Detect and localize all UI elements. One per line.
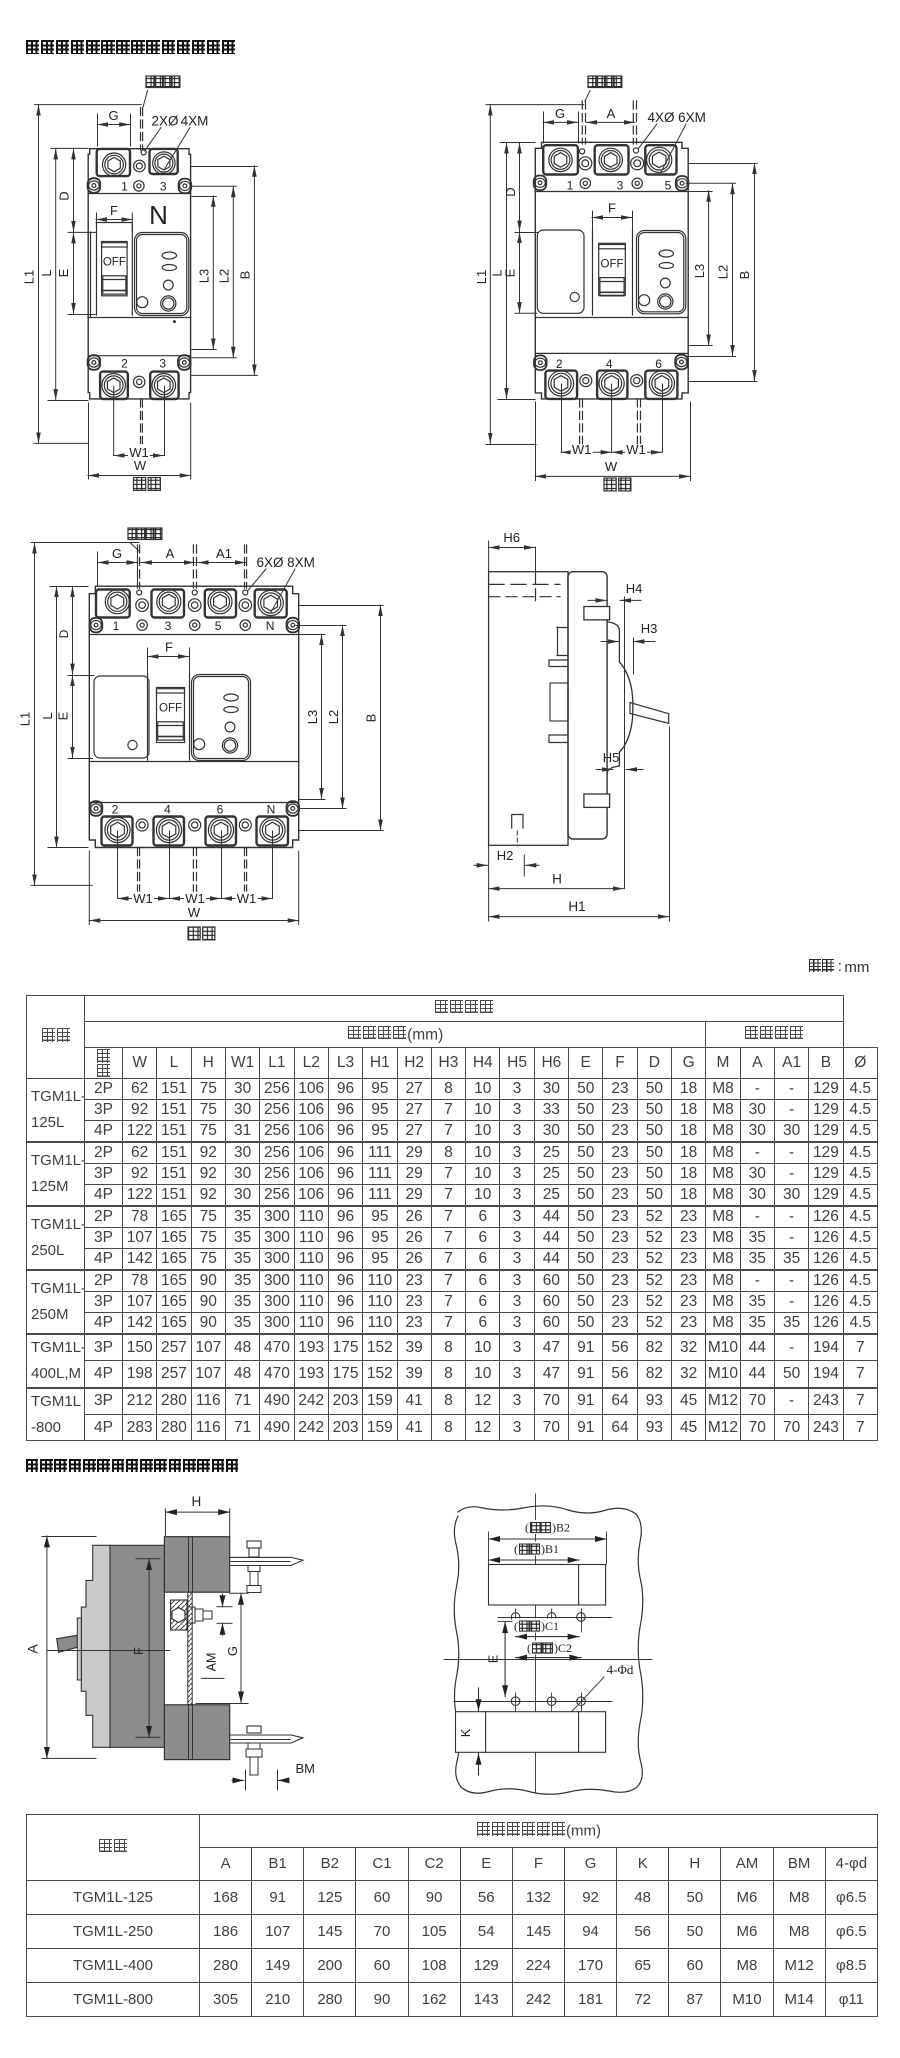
svg-text:H1: H1 xyxy=(568,899,585,914)
svg-text:H6: H6 xyxy=(503,530,520,545)
svg-text:BM: BM xyxy=(295,1761,315,1776)
svg-text:1: 1 xyxy=(121,180,128,194)
svg-text:H5: H5 xyxy=(603,750,620,765)
svg-text:F: F xyxy=(608,201,616,216)
svg-text:(: ( xyxy=(514,1619,518,1633)
svg-text:3: 3 xyxy=(159,357,166,371)
svg-text:OFF: OFF xyxy=(103,257,126,269)
svg-text:5: 5 xyxy=(215,619,222,633)
svg-text:G: G xyxy=(225,1646,240,1656)
svg-text:4XM: 4XM xyxy=(181,114,209,129)
svg-text:L: L xyxy=(40,712,55,719)
svg-text:L3: L3 xyxy=(197,269,212,283)
svg-text:3: 3 xyxy=(617,179,624,193)
svg-text:W: W xyxy=(188,905,201,920)
svg-text:1: 1 xyxy=(113,619,120,633)
svg-text:L2: L2 xyxy=(715,265,730,279)
svg-text:H: H xyxy=(552,872,562,887)
svg-text:3: 3 xyxy=(160,180,167,194)
svg-text:E: E xyxy=(487,1655,501,1663)
svg-text:1: 1 xyxy=(567,179,574,193)
svg-text:D: D xyxy=(56,191,71,200)
svg-text:W: W xyxy=(605,459,618,474)
svg-text:L1: L1 xyxy=(474,270,489,284)
svg-text:E: E xyxy=(56,268,71,277)
svg-text:8XM: 8XM xyxy=(287,555,315,570)
svg-text:W1: W1 xyxy=(626,442,646,457)
svg-text:L1: L1 xyxy=(18,712,33,726)
svg-text:4: 4 xyxy=(164,803,171,817)
svg-text:2: 2 xyxy=(121,357,128,371)
svg-text:6: 6 xyxy=(217,803,224,817)
svg-text:K: K xyxy=(459,1728,473,1737)
svg-text:A: A xyxy=(607,106,616,121)
svg-text:4XØ: 4XØ xyxy=(647,110,675,125)
svg-text:(: ( xyxy=(527,1641,531,1655)
svg-text:6XØ: 6XØ xyxy=(256,555,284,570)
svg-text:4: 4 xyxy=(606,357,613,371)
svg-text:H4: H4 xyxy=(626,581,643,596)
svg-text:W: W xyxy=(134,458,147,473)
svg-text:OFF: OFF xyxy=(601,258,624,270)
svg-text:W1: W1 xyxy=(185,891,205,906)
svg-text:W1: W1 xyxy=(237,891,257,906)
svg-text:6XM: 6XM xyxy=(678,110,706,125)
svg-text:4-Φd: 4-Φd xyxy=(607,1662,634,1677)
svg-text:(: ( xyxy=(525,1521,529,1535)
svg-text:2: 2 xyxy=(112,803,119,817)
svg-text:OFF: OFF xyxy=(159,703,182,715)
svg-text:)C1: )C1 xyxy=(541,1619,559,1633)
svg-text:AM: AM xyxy=(205,1653,219,1672)
svg-text:5: 5 xyxy=(665,179,672,193)
svg-text:B: B xyxy=(238,271,253,280)
svg-text:(: ( xyxy=(514,1542,518,1556)
svg-text:G: G xyxy=(108,108,118,123)
svg-text:A: A xyxy=(25,1644,41,1654)
svg-text:N: N xyxy=(266,619,275,633)
svg-text:N: N xyxy=(267,803,276,817)
svg-text:)C2: )C2 xyxy=(554,1641,572,1655)
svg-text:L: L xyxy=(39,269,54,276)
svg-text:A1: A1 xyxy=(216,546,232,561)
svg-text:F: F xyxy=(110,203,118,218)
svg-text:2: 2 xyxy=(556,357,563,371)
svg-text:E: E xyxy=(56,711,71,720)
svg-text:L1: L1 xyxy=(22,270,37,284)
svg-text:E: E xyxy=(503,268,518,277)
svg-text:)B1: )B1 xyxy=(541,1542,559,1556)
svg-text:G: G xyxy=(112,546,122,561)
svg-text:H2: H2 xyxy=(497,848,514,863)
svg-text:L3: L3 xyxy=(692,264,707,278)
svg-text:L3: L3 xyxy=(305,710,320,724)
svg-text:B: B xyxy=(737,271,752,280)
svg-text:)B2: )B2 xyxy=(552,1521,570,1535)
svg-text:N: N xyxy=(149,200,168,230)
svg-text:A: A xyxy=(166,546,175,561)
svg-text:D: D xyxy=(503,187,518,196)
svg-text:F: F xyxy=(165,640,173,655)
svg-text:W1: W1 xyxy=(572,442,592,457)
svg-text:H: H xyxy=(192,1494,202,1509)
svg-text:G: G xyxy=(555,106,565,121)
svg-text:L2: L2 xyxy=(217,269,232,283)
svg-text:W1: W1 xyxy=(133,891,153,906)
svg-text:2XØ: 2XØ xyxy=(151,114,179,129)
svg-text:D: D xyxy=(57,629,71,638)
svg-text:6: 6 xyxy=(655,357,662,371)
svg-text:F: F xyxy=(131,1647,146,1655)
svg-text:H3: H3 xyxy=(641,621,658,636)
svg-text:L2: L2 xyxy=(326,710,341,724)
svg-text:3: 3 xyxy=(165,619,172,633)
svg-text:B: B xyxy=(363,714,378,723)
